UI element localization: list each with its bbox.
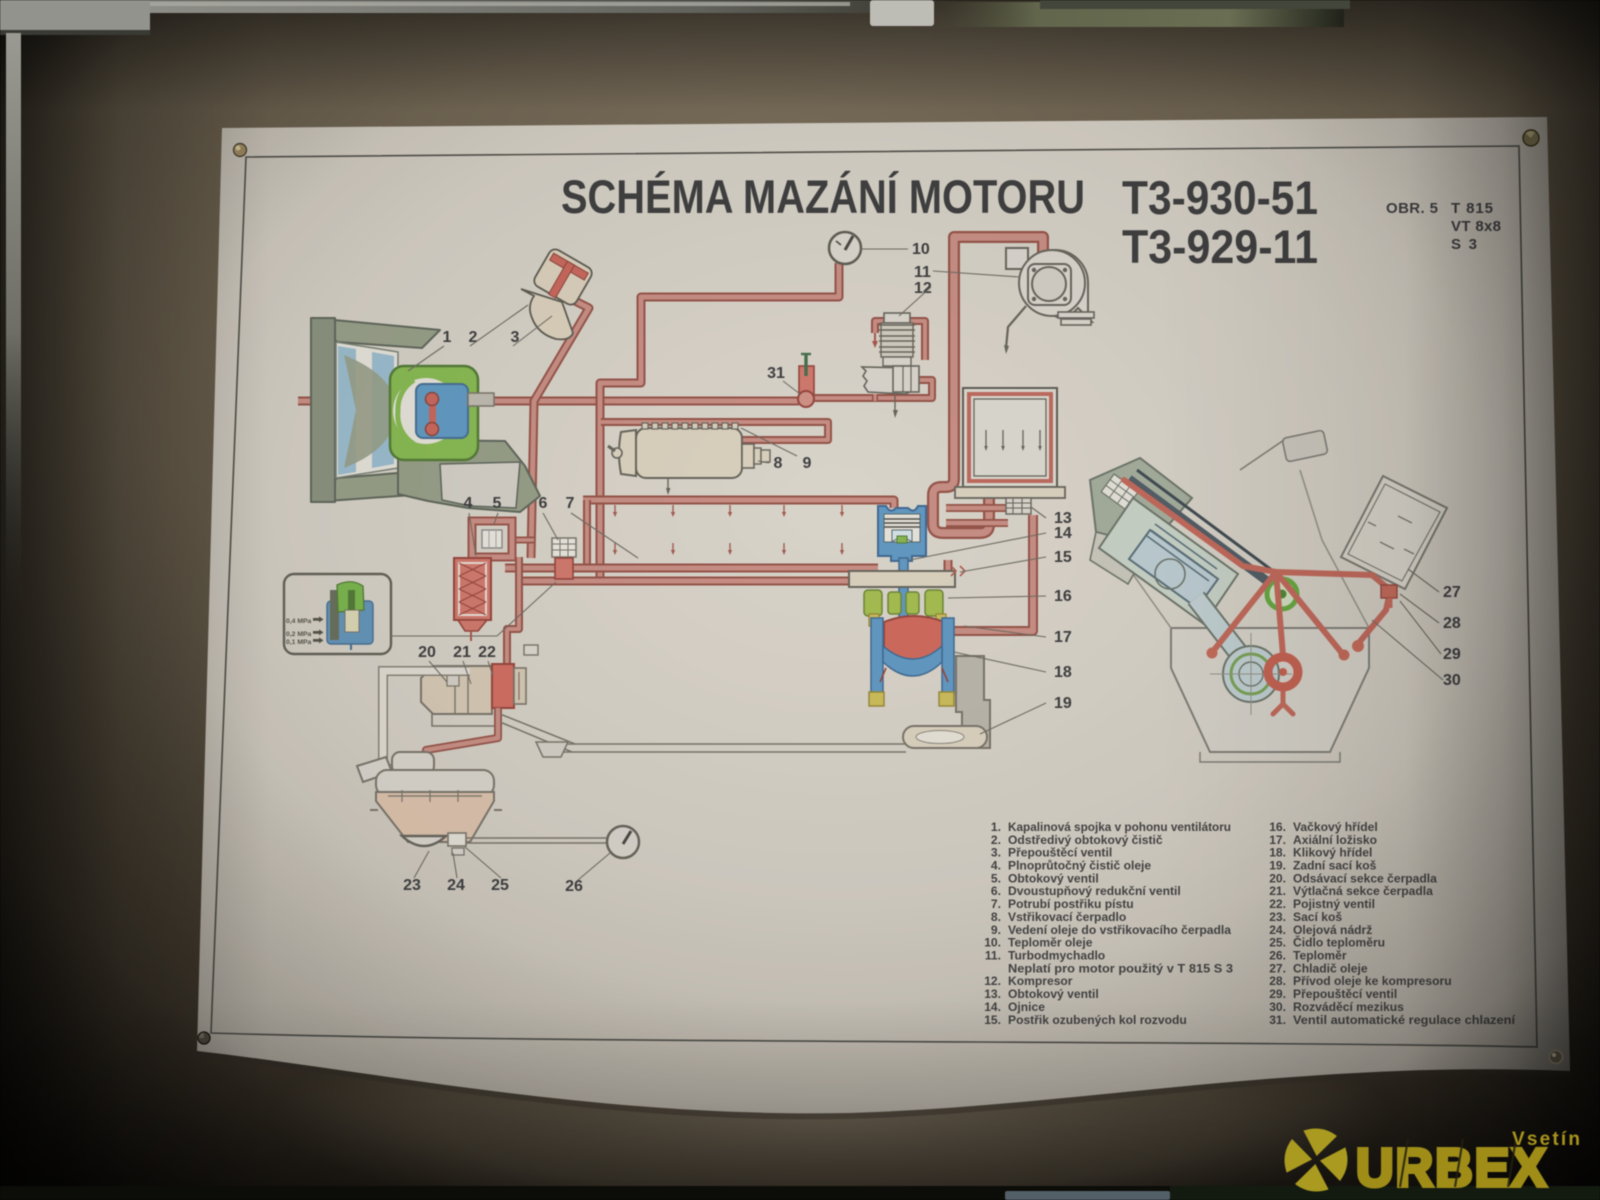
svg-text:Vsetín: Vsetín: [1512, 1129, 1580, 1150]
